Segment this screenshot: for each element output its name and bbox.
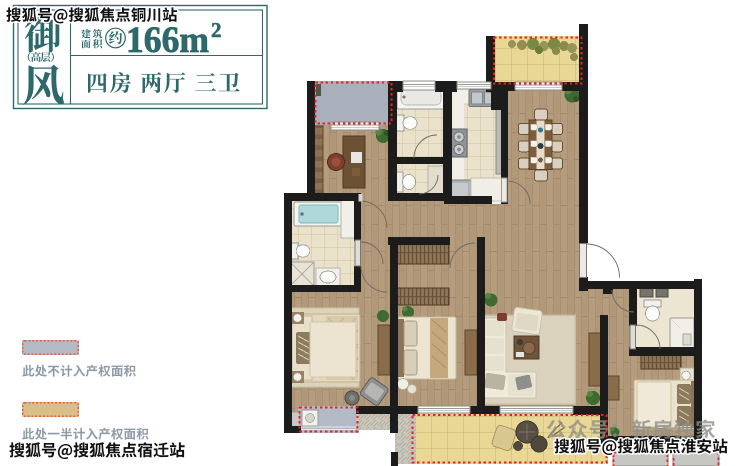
svg-text:2: 2 bbox=[211, 18, 222, 42]
svg-text:166m: 166m bbox=[126, 19, 209, 60]
